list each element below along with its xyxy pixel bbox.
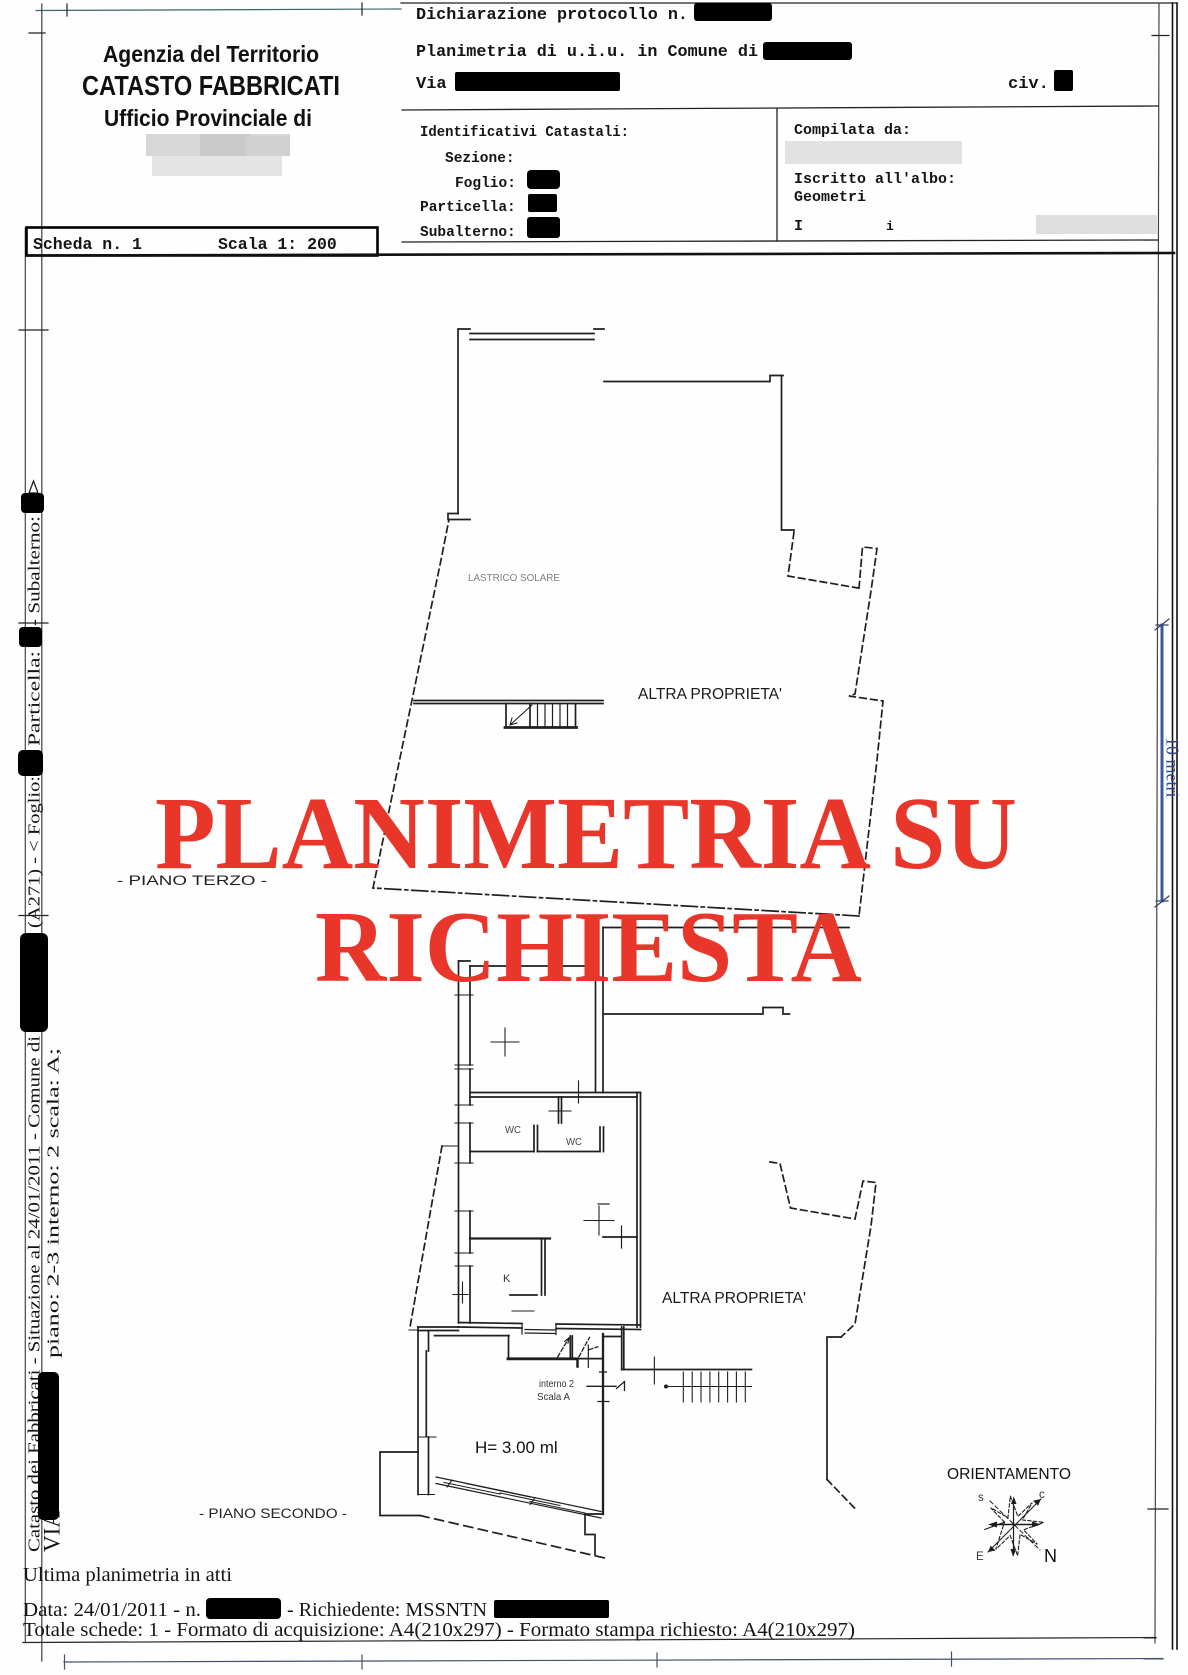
svg-text:Data: 24/01/2011 - n.: Data: 24/01/2011 - n. [23, 1600, 201, 1621]
svg-text:- Richiedente: MSSNTN: - Richiedente: MSSNTN [287, 1600, 487, 1621]
svg-text:Scala A: Scala A [537, 1391, 570, 1403]
svg-text:Iscritto all'albo:: Iscritto all'albo: [794, 171, 956, 188]
svg-text:WC: WC [566, 1136, 582, 1148]
svg-text:Geometri: Geometri [794, 189, 866, 206]
svg-text:E: E [976, 1551, 984, 1563]
svg-text:interno 2: interno 2 [539, 1378, 574, 1390]
svg-text:Identificativi Catastali:: Identificativi Catastali: [420, 125, 629, 141]
svg-text:ORIENTAMENTO: ORIENTAMENTO [947, 1466, 1071, 1483]
svg-text:Planimetria di u.i.u. in Comun: Planimetria di u.i.u. in Comune di [416, 43, 758, 62]
svg-text:Foglio:: Foglio: [455, 176, 516, 192]
svg-text:s: s [978, 1492, 984, 1504]
svg-text:piano: 2-3 interno: 2 scala: A: piano: 2-3 interno: 2 scala: A; [44, 1048, 63, 1358]
svg-text:Dichiarazione protocollo n.: Dichiarazione protocollo n. [416, 6, 688, 25]
svg-text:Totale schede: 1 - Formato di: Totale schede: 1 - Formato di acquisizio… [23, 1620, 855, 1641]
svg-text:Ultima planimetria in atti: Ultima planimetria in atti [23, 1565, 233, 1586]
svg-text:Particella:: Particella: [25, 651, 44, 746]
svg-text:Subalterno:: Subalterno: [420, 225, 516, 241]
svg-text:H= 3.00 ml: H= 3.00 ml [475, 1438, 558, 1457]
svg-text:CATASTO FABBRICATI: CATASTO FABBRICATI [82, 70, 340, 101]
svg-text:Particella:: Particella: [420, 200, 516, 216]
svg-text:- PIANO SECONDO -: - PIANO SECONDO - [199, 1506, 347, 1521]
svg-text:WC: WC [505, 1124, 521, 1136]
svg-text:Agenzia del Territorio: Agenzia del Territorio [103, 41, 319, 67]
svg-text:Via: Via [416, 75, 447, 94]
svg-text:10 metri: 10 metri [1163, 737, 1183, 798]
svg-text:K: K [503, 1273, 511, 1285]
svg-text:ALTRA PROPRIETA': ALTRA PROPRIETA' [638, 686, 782, 703]
svg-text:Compilata da:: Compilata da: [794, 122, 911, 139]
svg-text:Ufficio Provinciale di: Ufficio Provinciale di [104, 105, 312, 131]
svg-text:i: i [886, 219, 894, 234]
svg-text:Scala 1: 200: Scala 1: 200 [218, 235, 337, 254]
svg-text:ALTRA PROPRIETA': ALTRA PROPRIETA' [662, 1290, 806, 1307]
svg-text:- Subalterno:: - Subalterno: [25, 516, 44, 626]
svg-text:civ.: civ. [1008, 75, 1049, 94]
svg-text:N: N [1044, 1546, 1057, 1566]
svg-text:PLANIMETRIA SU: PLANIMETRIA SU [155, 776, 1017, 891]
svg-text:LASTRICO SOLARE: LASTRICO SOLARE [468, 572, 560, 584]
svg-text:Scheda n. 1: Scheda n. 1 [33, 235, 142, 254]
svg-text:RICHIESTA: RICHIESTA [315, 891, 862, 1004]
svg-text:(A271) - < Foglio:: (A271) - < Foglio: [25, 776, 44, 928]
svg-text:c: c [1039, 1489, 1045, 1501]
svg-text:I: I [794, 218, 803, 235]
svg-text:Sezione:: Sezione: [445, 151, 515, 167]
